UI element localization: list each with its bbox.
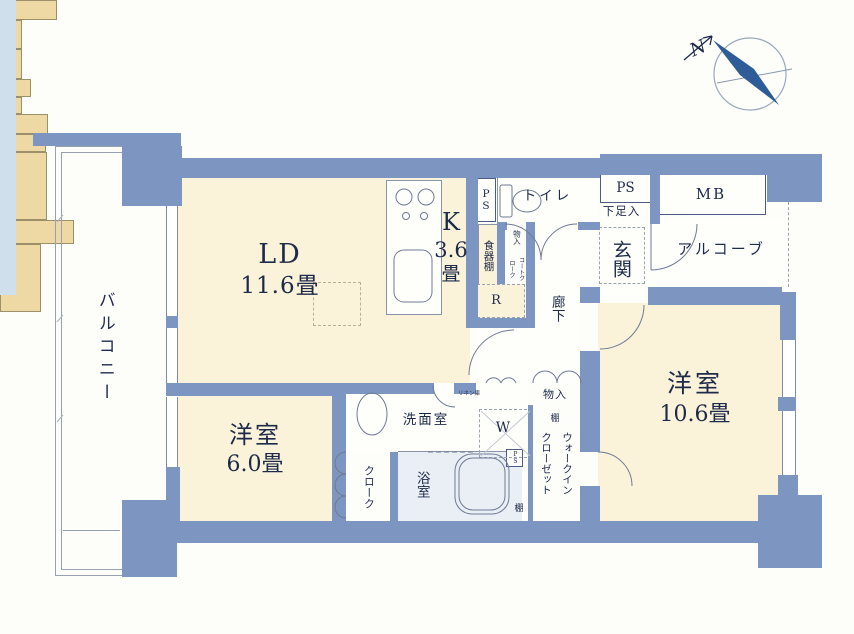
wall-segment [33,133,181,146]
living-dining-label: LD [195,240,365,270]
compass-circle [714,38,786,110]
wall-segment [332,394,346,523]
western-room-6-label: 洋室 [185,422,325,450]
shoe-cabinet-label: 下足入 [593,202,650,222]
wall-segment [390,452,398,523]
wall-segment [166,521,766,543]
western-room-6-size-label: 6.0畳 [185,452,325,478]
bathroom-label: 浴室 [409,458,433,510]
toilet-label: トイレ [500,186,595,208]
western-room-10-size-label: 10.6畳 [625,402,765,428]
meter-box-label: MB [656,174,766,215]
washroom-label: 洗面室 [376,412,476,430]
balcony-label: バルコニー [86,278,122,418]
wall-segment [466,318,534,328]
wall-segment [600,154,767,175]
bedroom-storage-label: 物入 [531,385,579,405]
ps-entrance-label: PS [600,174,651,203]
ps-utility-label: PS [506,449,523,467]
scan-edge-strip [0,0,16,295]
compass-needle-icon [713,40,779,105]
coat-cloak-label: コートクローク [504,255,528,283]
wall-segment [580,351,600,452]
north-arrow-icon [684,36,712,60]
hallway-vestibule [476,328,533,385]
wall-segment [758,495,822,568]
walk-in-closet-label: ウォークインクローゼット [535,431,577,495]
wall-segment [648,287,782,305]
window-western10-east-upper [782,340,796,397]
compass-east-line [717,69,792,83]
western-room-10-label: 洋室 [625,370,765,398]
entrance-label: 玄関 [606,228,634,290]
window-ld-west-lower [166,328,178,383]
wall-segment [166,383,346,396]
compass-north-label: N [686,35,711,62]
washer-space-label: W [486,418,520,438]
cloak-label: クローク [355,457,381,517]
linen-cabinet-label: リネン庫 [458,386,480,403]
wall-segment [778,397,796,411]
wall-segment [778,475,798,497]
ps-kitchen-label: PS [476,180,496,220]
alcove-label: アルコーブ [653,240,790,260]
wall-segment [166,158,478,178]
wall-segment [578,222,600,230]
shelf-lower-label: 棚 [506,499,532,519]
window-western10-east-lower [782,411,796,475]
kitchen-size-unit-label: 畳 [428,264,474,286]
wall-segment [580,486,600,521]
hallway-storage-label: 物入 [505,224,527,251]
dish-shelf-label: 食器棚 [478,227,499,285]
refrigerator-space-label: R [467,284,525,318]
wall-segment [780,292,796,340]
living-dining-size-label: 11.6畳 [195,272,365,300]
kitchen-label: K [428,210,474,236]
hallway-label: 廊下 [544,284,568,332]
wall-segment [166,316,178,328]
shelf-upper-label: 棚 [532,410,578,428]
wall-segment [346,383,434,394]
kitchen-size-label: 3.6 [428,238,474,262]
floor-plan: N バルコニー LD 11.6畳 K 3.6 畳 PS 食器棚 物入 コートクロ… [0,0,854,634]
window-ld-west-upper [166,206,178,316]
wall-segment [580,287,600,303]
wall-segment [478,158,600,178]
balcony-partition-line [63,530,120,531]
wall-segment [767,154,822,202]
window-western6-west [166,397,178,467]
compass: N [684,35,792,110]
